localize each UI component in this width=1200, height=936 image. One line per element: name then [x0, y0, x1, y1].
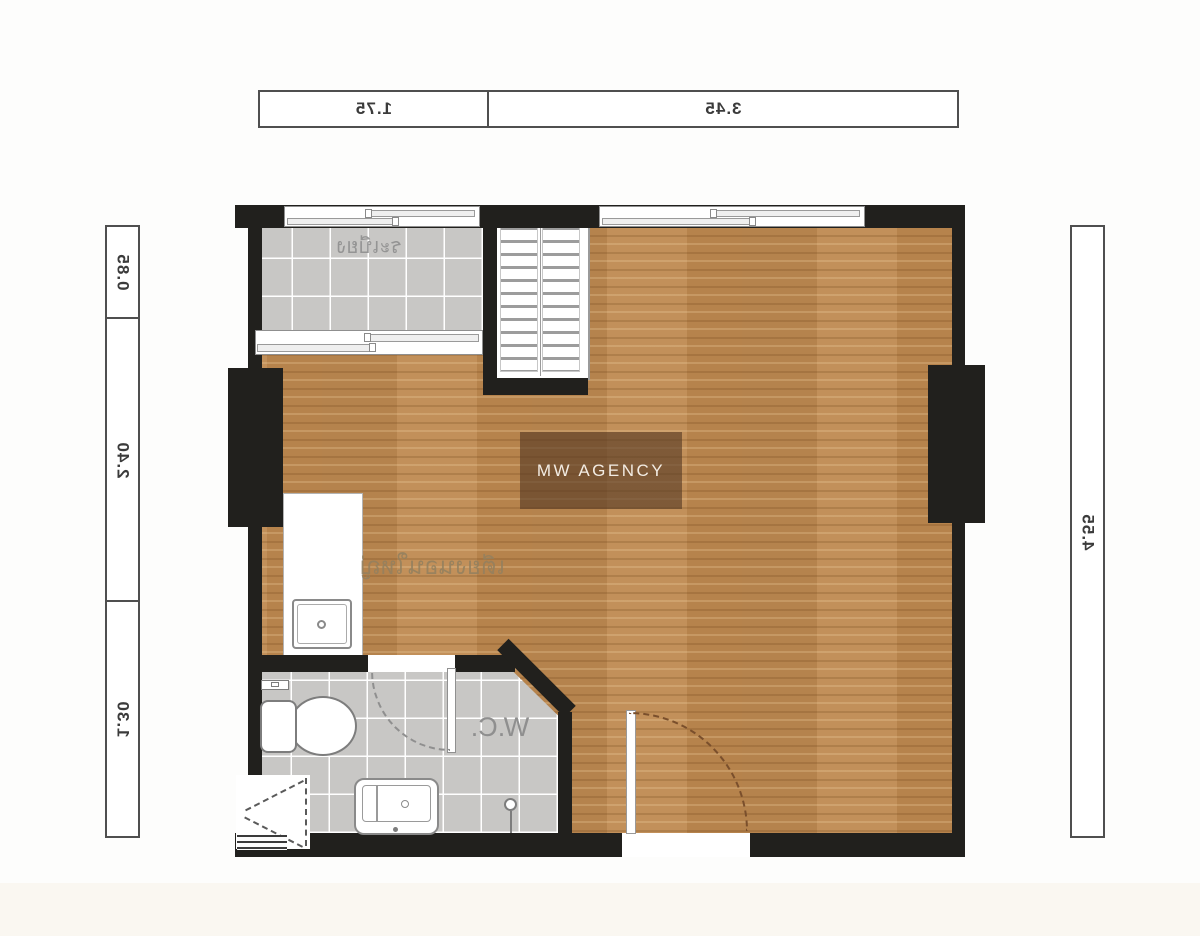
bathroom-door-opening	[368, 655, 455, 672]
bathroom-vanity-icon	[354, 778, 439, 835]
wardrobe	[495, 218, 590, 380]
bathroom-label: W.C.	[450, 712, 550, 743]
dimension-cell: 2.40	[107, 319, 138, 602]
dimension-label: 0.85	[113, 253, 133, 290]
balcony-window	[284, 206, 480, 227]
dimension-label: 4.55	[1078, 513, 1098, 550]
entrance-door-opening	[622, 833, 750, 857]
balcony-sliding-door	[255, 330, 483, 355]
wardrobe-bottom-wall	[483, 378, 588, 395]
bottom-wall	[235, 833, 965, 857]
balcony-floor: ระเบียง	[255, 218, 483, 335]
dimension-cell: 4.55	[1072, 227, 1103, 836]
dimension-bar-left: 0.85 2.40 1.30	[105, 225, 140, 838]
kitchen-sink	[292, 599, 352, 649]
louver-grille-icon	[237, 835, 287, 850]
dimension-cell: 0.85	[107, 227, 138, 319]
dimension-label: 1.30	[113, 700, 133, 737]
floor-plan-image: 3.45 1.75 0.85 2.40 1.30 4.55	[0, 0, 1200, 936]
left-wall	[952, 205, 965, 857]
dimension-cell-balcony-width: 1.75	[260, 92, 487, 126]
bathroom-side-wall	[558, 712, 572, 857]
right-wall-column	[228, 368, 283, 527]
dimension-cell: 1.30	[107, 602, 138, 836]
wardrobe-slats	[500, 226, 538, 372]
toilet-paper-holder-icon	[261, 680, 289, 690]
wardrobe-side-wall	[483, 205, 497, 395]
watermark-text: MW AGENCY	[537, 461, 665, 481]
main-area-label: เตียงนอนใหญ่	[350, 546, 515, 585]
toilet-tank-icon	[260, 700, 297, 753]
bottom-backdrop	[0, 883, 1200, 936]
utility-niche-dashes	[305, 778, 307, 846]
toilet-bowl-icon	[289, 696, 357, 756]
main-sliding-window	[599, 206, 865, 227]
shower-hose-icon	[510, 811, 512, 833]
left-wall-column	[928, 365, 985, 523]
dimension-label: 3.45	[704, 99, 741, 119]
sink-drain-icon	[317, 620, 326, 629]
dimension-bar-top: 3.45 1.75	[258, 90, 959, 128]
wardrobe-slats	[542, 226, 580, 372]
dimension-cell-main-width: 3.45	[487, 92, 957, 126]
dimension-label: 2.40	[113, 441, 133, 478]
watermark: MW AGENCY	[520, 432, 682, 509]
right-wall	[248, 205, 262, 857]
dimension-bar-right: 4.55	[1070, 225, 1105, 838]
dimension-label: 1.75	[355, 99, 392, 119]
shower-head-icon	[504, 798, 517, 811]
balcony-label: ระเบียง	[255, 230, 483, 263]
bathroom-top-wall	[250, 655, 368, 672]
